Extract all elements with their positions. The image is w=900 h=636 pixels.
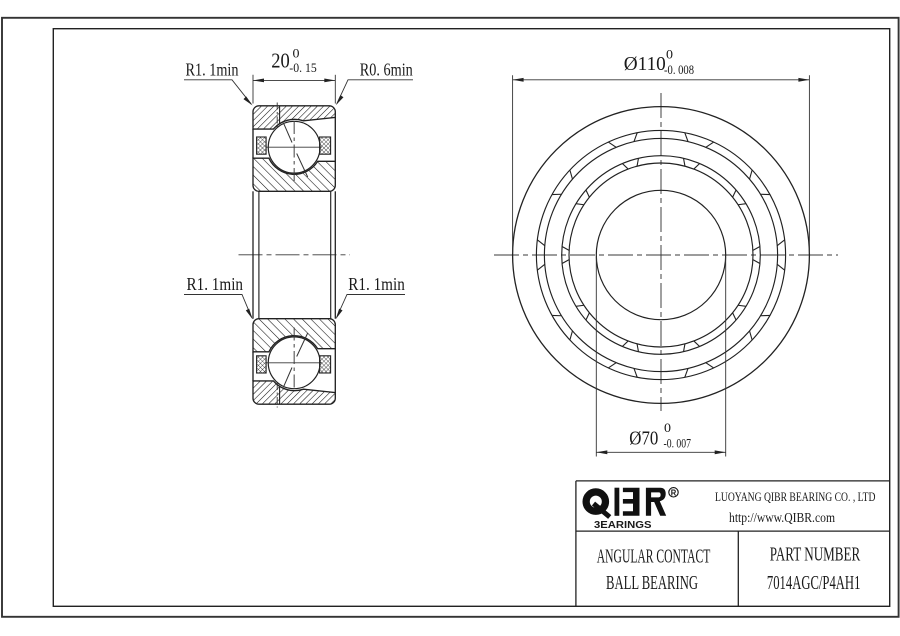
- svg-text:-0. 007: -0. 007: [664, 435, 692, 450]
- svg-text:0: 0: [293, 46, 300, 61]
- svg-text:3EARINGS: 3EARINGS: [594, 520, 652, 531]
- svg-text:R1. 1min: R1. 1min: [348, 274, 405, 294]
- svg-text:ANGULAR CONTACT: ANGULAR CONTACT: [597, 546, 711, 568]
- svg-text:Ø110: Ø110: [624, 53, 666, 75]
- svg-text:BALL BEARING: BALL BEARING: [606, 572, 698, 594]
- svg-text:-0. 008: -0. 008: [664, 62, 694, 77]
- svg-text:http://www.QIBR.com: http://www.QIBR.com: [729, 510, 835, 525]
- svg-text:R1. 1min: R1. 1min: [187, 274, 244, 294]
- svg-text:LUOYANG QIBR BEARING CO. , LTD: LUOYANG QIBR BEARING CO. , LTD: [715, 489, 876, 504]
- svg-text:PART NUMBER: PART NUMBER: [770, 544, 861, 566]
- svg-text:0: 0: [666, 47, 673, 62]
- svg-text:Ø70: Ø70: [629, 428, 658, 450]
- svg-text:7014AGC/P4AH1: 7014AGC/P4AH1: [767, 572, 861, 594]
- svg-text:R1. 1min: R1. 1min: [186, 60, 239, 80]
- svg-text:R: R: [671, 487, 677, 497]
- svg-text:0: 0: [664, 420, 671, 435]
- svg-text:20: 20: [271, 49, 290, 73]
- svg-text:R0. 6min: R0. 6min: [360, 60, 413, 80]
- svg-text:-0. 15: -0. 15: [289, 60, 317, 75]
